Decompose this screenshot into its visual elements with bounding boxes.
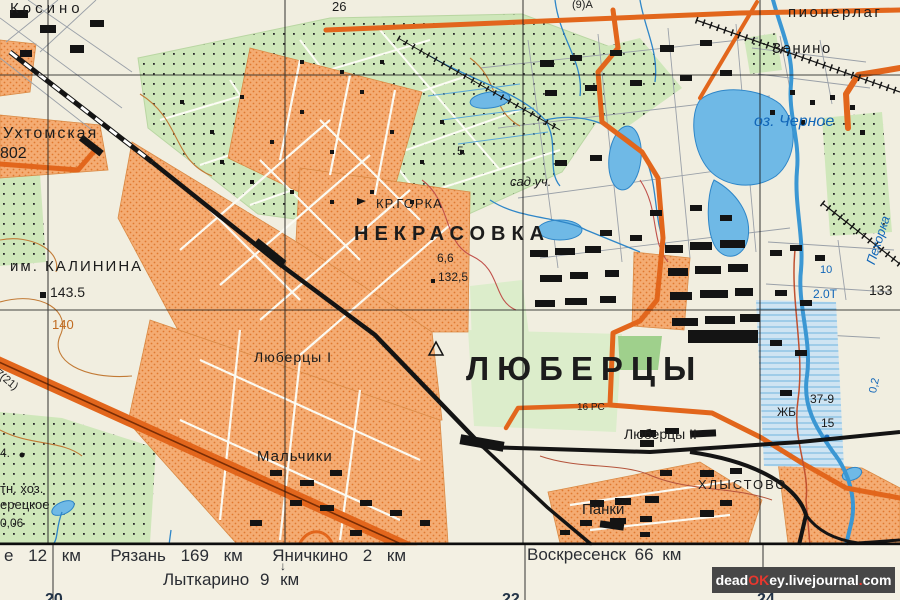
watermark-part: dead: [716, 573, 749, 587]
watermark-part: ey: [769, 573, 785, 587]
spot-dot: [20, 453, 25, 458]
neatline: [0, 543, 900, 546]
map-canvas: [0, 0, 900, 600]
watermark: deadOKey.livejournal.com: [712, 567, 895, 593]
spot-height-dot: [431, 279, 435, 283]
watermark-part: OK: [748, 573, 769, 587]
spot-height-dot: [40, 292, 46, 298]
watermark-part: .livejournal: [785, 573, 859, 587]
topo-map-screenshot: Косино26(9)АпионерлагЗенинооз. ЧерноеПех…: [0, 0, 900, 600]
watermark-part: com: [863, 573, 892, 587]
